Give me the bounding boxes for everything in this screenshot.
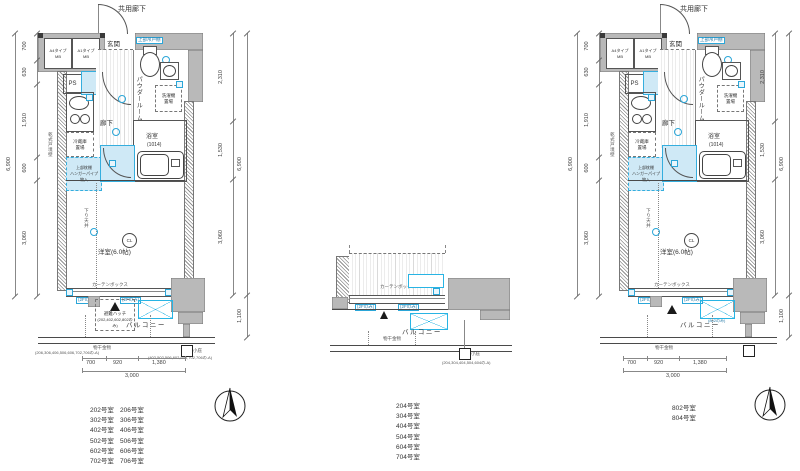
escape-hatch-icon bbox=[380, 311, 388, 319]
down-ceiling-label: 下り天井 bbox=[84, 208, 89, 228]
washbasin-bowl-icon bbox=[163, 65, 176, 77]
window-frame-mark bbox=[628, 289, 635, 296]
washer-space: 洗濯機置場 bbox=[155, 85, 182, 112]
ground-line bbox=[330, 345, 512, 346]
dim-label: 3,060 bbox=[22, 226, 30, 250]
room-label: 洋室(6.0帖) bbox=[98, 249, 131, 257]
burner-icon bbox=[70, 114, 80, 124]
ps-label: PS bbox=[625, 74, 644, 94]
dimension-row: 700 920 1,380 3,000 bbox=[82, 356, 192, 382]
fixture-tag bbox=[680, 95, 688, 103]
mb-label: MB bbox=[83, 54, 89, 59]
mb-label: MB bbox=[55, 54, 61, 59]
corridor-label: 共用廊下 bbox=[118, 6, 146, 14]
wall-corner bbox=[38, 33, 43, 38]
dim-label: 1,380 bbox=[693, 360, 707, 367]
mb-label: MB bbox=[645, 54, 651, 59]
mb-label: MB bbox=[617, 54, 623, 59]
dim-label: 3,060 bbox=[584, 226, 592, 250]
dim-label: 700 bbox=[584, 34, 592, 58]
party-wall-hatch bbox=[620, 72, 628, 290]
genkan-label: 玄関 bbox=[669, 41, 682, 49]
bathtub-inner-icon bbox=[702, 154, 731, 176]
fixture-tag bbox=[118, 95, 126, 103]
ceiling-light-symbol: CL bbox=[122, 233, 137, 248]
mb-type-label: A1タイプ bbox=[640, 48, 657, 53]
ac-unit-space bbox=[410, 313, 448, 330]
bath-drain-icon bbox=[733, 159, 742, 167]
faucet-icon bbox=[648, 94, 655, 101]
room-label: 洋室(6.0帖) bbox=[660, 249, 693, 257]
fixture-tag bbox=[671, 160, 678, 167]
dim-label: 1,910 bbox=[584, 108, 592, 132]
corridor-label: 共用廊下 bbox=[680, 6, 708, 14]
ground-line bbox=[330, 351, 512, 352]
equipment-box bbox=[408, 274, 444, 288]
ceiling-light-symbol: CL bbox=[684, 233, 699, 248]
bathroom-label: 浴室 bbox=[146, 134, 158, 141]
dim-label: 1,910 bbox=[22, 108, 30, 132]
powder-room-label: パウダールーム bbox=[696, 76, 703, 122]
dim-label: 920 bbox=[113, 360, 122, 367]
building-block-step bbox=[178, 312, 203, 324]
dim-total-label: 3,000 bbox=[125, 373, 139, 380]
dim-label: 1,530 bbox=[218, 138, 226, 162]
room-number: 706号室 bbox=[120, 459, 150, 469]
dim-label: 920 bbox=[654, 360, 663, 367]
closet-shelf-label: 上部枕棚 bbox=[76, 165, 92, 170]
laundry-pole-mark bbox=[368, 331, 369, 345]
mb-type-label: A4タイプ bbox=[50, 48, 67, 53]
powder-room-label: パウダールーム bbox=[134, 76, 141, 122]
dimension-line bbox=[37, 33, 38, 296]
room-list-left: 202号室 206号室 302号室 306号室 402号室 406号室 502号… bbox=[90, 408, 150, 469]
north-compass bbox=[211, 384, 249, 424]
balcony-side-wall bbox=[650, 296, 662, 307]
escape-hatch-icon bbox=[110, 302, 120, 311]
fixture-tag bbox=[112, 128, 120, 136]
dim-label: 3,060 bbox=[760, 225, 768, 249]
bathroom-size-label: (1014) bbox=[709, 142, 723, 148]
dim-label: 3,060 bbox=[218, 225, 226, 249]
fridge-label: 冷蔵庫置場 bbox=[72, 139, 89, 151]
window-band bbox=[628, 288, 733, 297]
dimension-line bbox=[15, 33, 16, 296]
dim-label: 1,380 bbox=[152, 360, 166, 367]
room-list-right: 802号室 804号室 bbox=[672, 406, 696, 426]
laundry-pole-mark bbox=[85, 315, 86, 337]
mb-type-label: A1タイプ bbox=[78, 48, 95, 53]
ps-label: PS bbox=[63, 74, 82, 94]
down-ceiling-label: 下り天井 bbox=[646, 208, 651, 228]
genkan-step-line bbox=[98, 49, 133, 50]
dim-label: 2,310 bbox=[760, 65, 768, 89]
bathroom-size-label: (1014) bbox=[147, 142, 161, 148]
bathroom-label: 浴室 bbox=[708, 134, 720, 141]
building-block-step bbox=[480, 310, 510, 320]
room-wall-line bbox=[66, 180, 185, 181]
washer-label: 洗濯機置場 bbox=[722, 93, 739, 105]
party-wall-hatch bbox=[58, 72, 66, 290]
dim-balcony-label: 1,100 bbox=[779, 304, 787, 328]
laundry-fitting-label: 物干金物 bbox=[383, 336, 401, 341]
dim-label: 600 bbox=[22, 156, 30, 180]
room-number: 804号室 bbox=[672, 416, 696, 426]
ground-line bbox=[38, 343, 215, 344]
fixture-tag bbox=[90, 228, 98, 236]
mb-box-a4: A4タイプMB bbox=[44, 38, 72, 69]
balcony-label: バルコニー bbox=[402, 329, 442, 337]
faucet-icon bbox=[86, 94, 93, 101]
dim-total-label: 6,900 bbox=[779, 152, 787, 176]
floor-plan-sheet: { "colors": { "accent_blue": "#2ba6d8", … bbox=[0, 0, 800, 471]
curtain-box-label: カーテンボックス bbox=[92, 282, 128, 287]
faucet-icon bbox=[738, 81, 745, 88]
window-band bbox=[349, 295, 445, 304]
washbasin-bowl-icon bbox=[725, 65, 738, 77]
room-list-middle: 204号室 304号室 404号室 504号室 604号室 704号室 bbox=[396, 404, 420, 465]
fixture-tag bbox=[674, 128, 682, 136]
closet-pipe-label: ハンガーパイプ bbox=[632, 171, 660, 176]
window-band bbox=[66, 288, 171, 297]
toilet-icon bbox=[702, 52, 722, 77]
eave-label: 小庇 bbox=[471, 351, 480, 356]
outer-wall-hatch bbox=[337, 257, 349, 302]
mb-box-a4: A4タイプMB bbox=[606, 38, 634, 69]
dim-label: 1,530 bbox=[760, 138, 768, 162]
eave-note: (204,304,404,504,604の-A) bbox=[442, 361, 490, 366]
eave-label: 小庇 bbox=[193, 348, 202, 353]
dim-total-label: 6,900 bbox=[568, 152, 576, 176]
room-number: 704号室 bbox=[396, 455, 420, 465]
window-glass-line bbox=[66, 291, 171, 292]
fridge-space: 冷蔵庫置場 bbox=[66, 132, 94, 157]
faucet-icon bbox=[433, 288, 440, 295]
building-block bbox=[171, 278, 205, 312]
mb-type-label: A4タイプ bbox=[612, 48, 629, 53]
escape-hatch-icon bbox=[667, 305, 677, 314]
dim-total-label: 6,900 bbox=[6, 152, 14, 176]
dim-label: 700 bbox=[86, 360, 95, 367]
washer-space: 洗濯機置場 bbox=[717, 85, 744, 112]
dim-label: 2,310 bbox=[218, 65, 226, 89]
dim-label: 700 bbox=[627, 360, 636, 367]
dim-label: 630 bbox=[584, 60, 592, 84]
right-wall-column bbox=[188, 50, 203, 102]
burner-icon bbox=[642, 114, 652, 124]
upper-cabinet-tag: 上部吊戸棚 bbox=[136, 37, 163, 44]
boundary-wall-label: 乾式戸境壁 bbox=[610, 132, 615, 157]
building-pillar bbox=[183, 324, 190, 337]
hallway-label: 廊下 bbox=[662, 120, 675, 128]
hallway-label: 廊下 bbox=[100, 120, 113, 128]
closet-pipe-label: ハンガーパイプ bbox=[70, 171, 98, 176]
boundary-wall-label: 乾式戸境壁 bbox=[48, 132, 53, 157]
ceiling-drop-line bbox=[96, 183, 97, 288]
laundry-fitting-label: 物干金物 bbox=[655, 345, 673, 350]
upper-cabinet-tag: 上部吊戸棚 bbox=[698, 37, 725, 44]
floor-plan-middle: カーテンボックス (2Fのみ) (2Fのみ) バルコニー 物干金物 小庇 (20… bbox=[330, 245, 520, 375]
fridge-label: 冷蔵庫置場 bbox=[634, 139, 651, 151]
fixture-tag bbox=[109, 160, 116, 167]
ac-unit-space bbox=[700, 300, 735, 319]
north-compass bbox=[751, 383, 789, 423]
toilet-icon bbox=[140, 52, 160, 77]
dim-label: 600 bbox=[584, 156, 592, 180]
dimension-row: 700 920 1,380 3,000 bbox=[623, 356, 733, 382]
eave-post bbox=[459, 348, 471, 360]
burner-icon bbox=[80, 114, 90, 124]
dim-total-label: 3,000 bbox=[666, 373, 680, 380]
burner-icon bbox=[632, 114, 642, 124]
dim-label: 630 bbox=[22, 60, 30, 84]
washer-label: 洗濯機置場 bbox=[160, 93, 177, 105]
fridge-space: 冷蔵庫置場 bbox=[628, 132, 656, 157]
curtain-box-label: カーテンボックス bbox=[654, 282, 690, 287]
dimension-column: 2,310 1,530 3,060 6,900 1,100 bbox=[760, 0, 800, 400]
dim-balcony-label: 1,100 bbox=[237, 304, 245, 328]
closet-shelf-label: 上部枕棚 bbox=[638, 165, 654, 170]
ground-line bbox=[38, 337, 215, 338]
bath-drain-icon bbox=[171, 159, 180, 167]
faucet-icon bbox=[176, 81, 183, 88]
dimension-column: 2,310 1,530 3,060 6,900 1,100 bbox=[218, 0, 258, 400]
dim-total-label: 6,900 bbox=[237, 152, 245, 176]
fixture-tag bbox=[652, 228, 660, 236]
ground-line bbox=[600, 343, 777, 344]
balcony-label: バルコニー bbox=[680, 322, 720, 330]
laundry-pole-mark bbox=[415, 331, 416, 345]
bathtub-inner-icon bbox=[140, 154, 169, 176]
ground-line bbox=[600, 337, 777, 338]
dim-label: 700 bbox=[22, 34, 30, 58]
eave-post bbox=[743, 345, 755, 357]
genkan-label: 玄関 bbox=[107, 41, 120, 49]
room-number: 702号室 bbox=[90, 459, 120, 469]
laundry-pole-mark bbox=[150, 315, 151, 337]
ac-unit-space bbox=[138, 300, 173, 319]
balcony-side-wall bbox=[332, 297, 348, 309]
building-block bbox=[448, 278, 510, 310]
window-frame-mark bbox=[66, 289, 73, 296]
balcony-label: バルコニー bbox=[126, 322, 166, 330]
railing-line bbox=[332, 309, 448, 310]
building-pillar bbox=[745, 324, 752, 337]
